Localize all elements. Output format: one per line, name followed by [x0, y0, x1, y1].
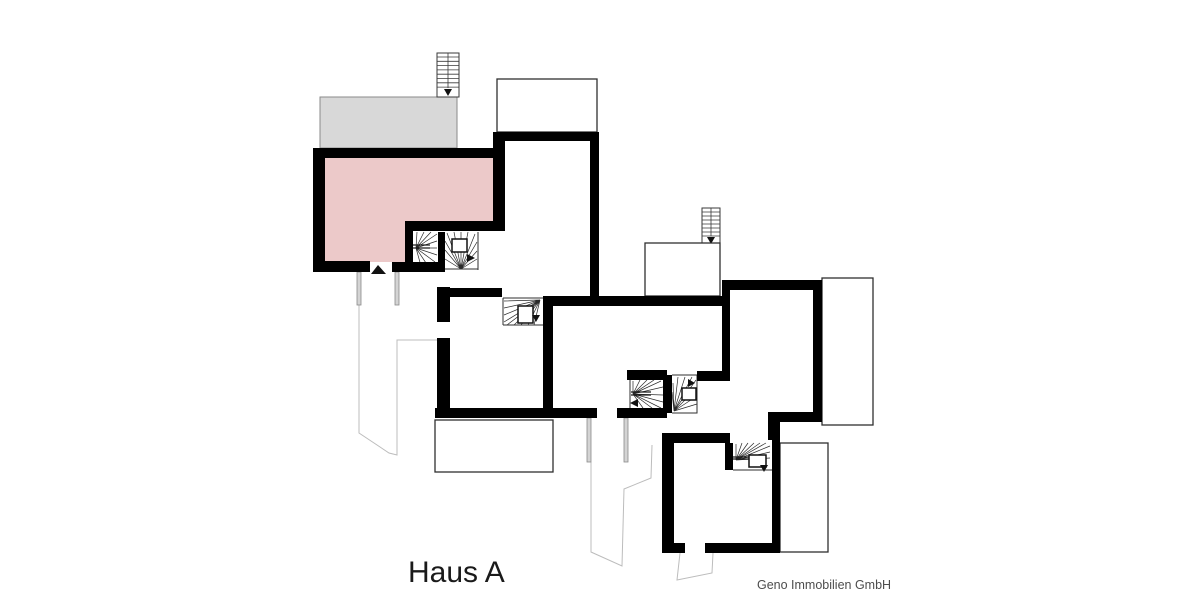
balcony-outline-bottom-right — [780, 443, 828, 552]
balcony-outline-right — [822, 278, 873, 425]
attribution-label: Geno Immobilien GmbH — [757, 578, 891, 592]
support-post — [395, 272, 399, 305]
winder-stair-unit3-right — [672, 375, 697, 413]
winder-stair-unit4 — [730, 443, 773, 472]
balcony-outline-top — [497, 79, 597, 132]
support-post — [624, 418, 628, 462]
floor-plan-drawing: Haus A Geno Immobilien GmbH — [0, 0, 1200, 600]
stair-landing — [452, 239, 467, 252]
support-post — [357, 272, 361, 305]
annex-room-outline — [645, 243, 720, 296]
support-post — [587, 418, 591, 462]
winder-stair-unit2 — [503, 298, 545, 325]
plan-title: Haus A — [408, 556, 505, 589]
winder-stair-unit3-left — [630, 380, 663, 408]
stair-landing — [682, 388, 696, 400]
stair-landing — [518, 306, 533, 323]
balcony-outline-bottom-left — [435, 420, 553, 472]
roof-terrace — [320, 97, 457, 148]
winder-stair-unit1-right — [445, 232, 478, 270]
exterior-stair-icon-top — [437, 53, 459, 97]
exterior-stair-icon-middle — [702, 208, 720, 244]
entrance-arrow-icon — [371, 265, 386, 274]
floor-plan-page: Haus A Geno Immobilien GmbH — [0, 0, 1200, 600]
